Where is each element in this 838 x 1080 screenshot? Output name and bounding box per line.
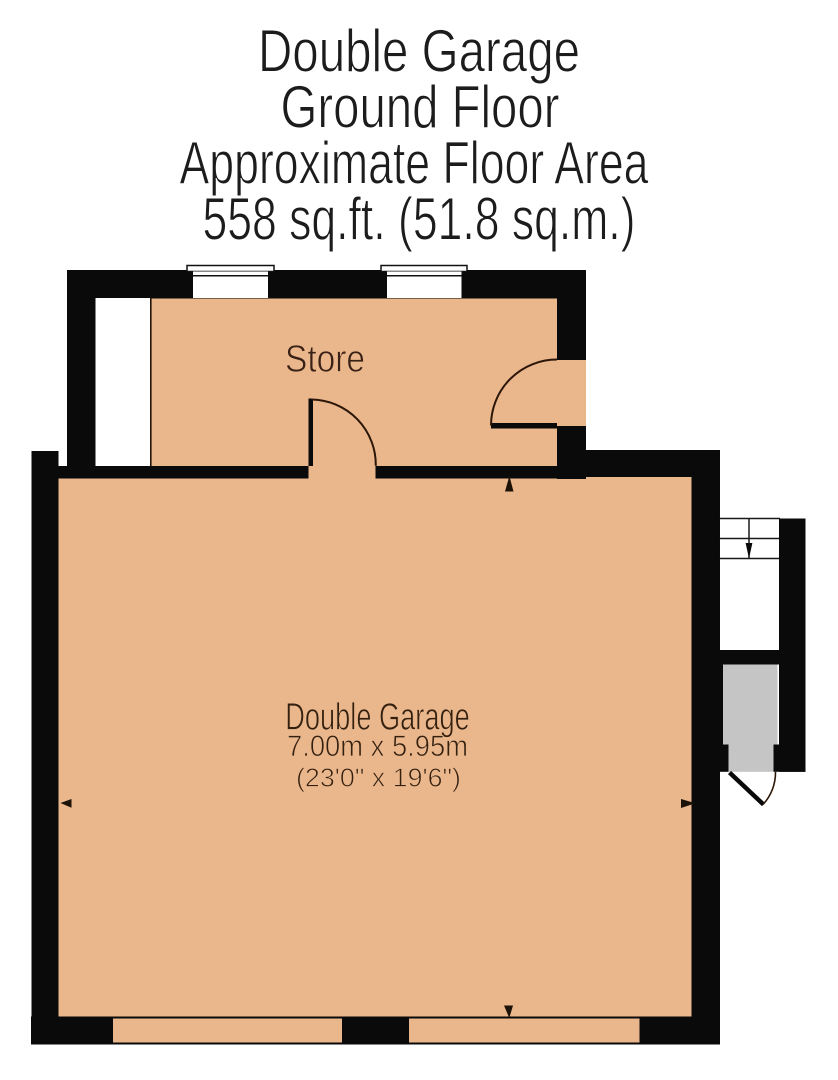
svg-text:558 sq.ft. (51.8 sq.m.): 558 sq.ft. (51.8 sq.m.) [203,186,636,253]
svg-text:7.00m x 5.95m: 7.00m x 5.95m [287,730,468,763]
svg-text:Store: Store [285,339,365,381]
svg-text:(23'0" x 19'6"): (23'0" x 19'6") [296,765,461,793]
